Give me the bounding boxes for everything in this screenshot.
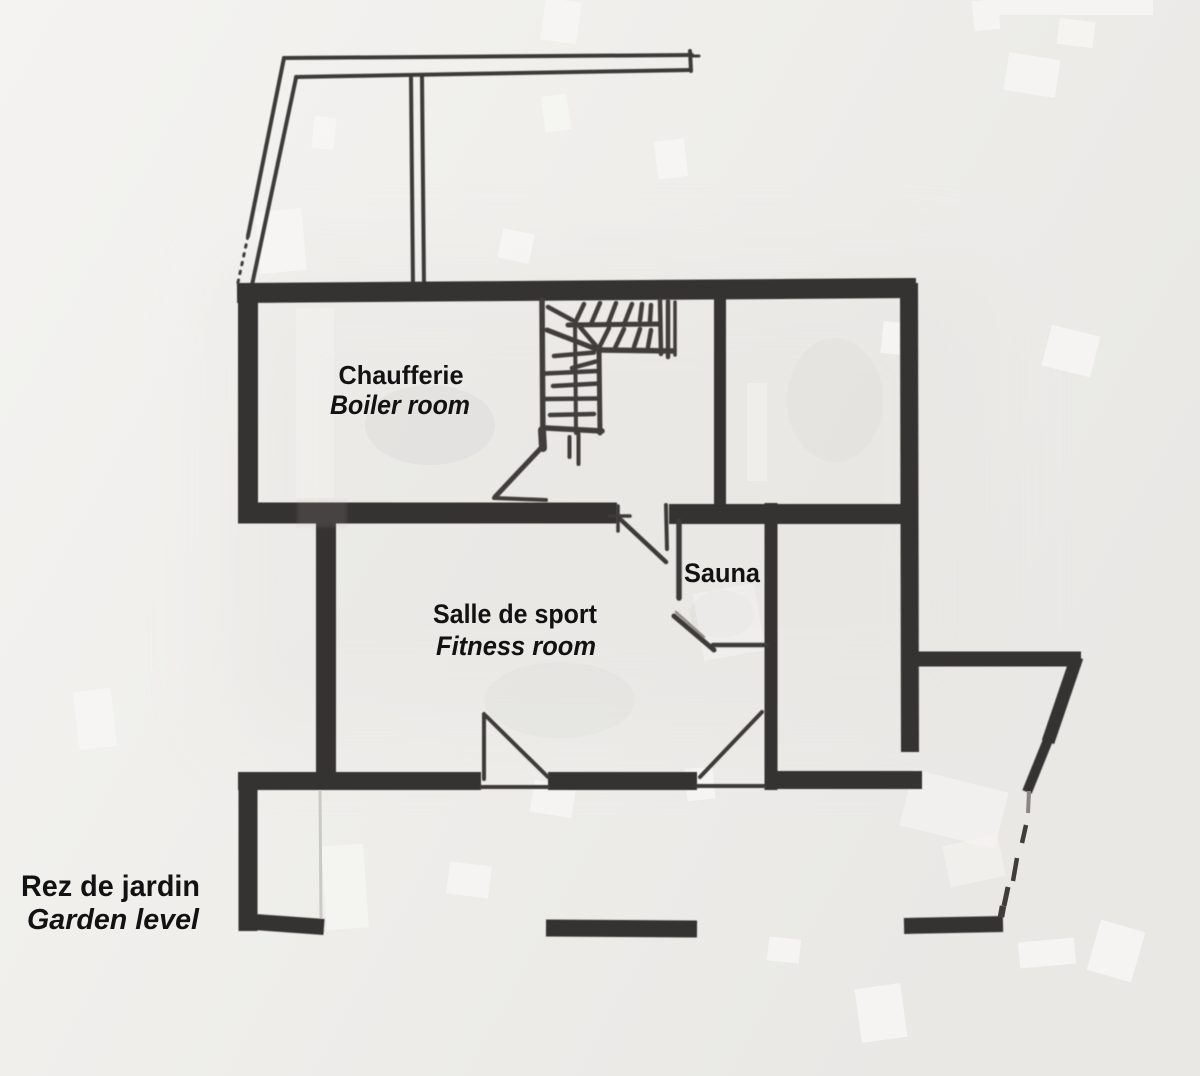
svg-text:Chaufferie: Chaufferie (339, 360, 464, 390)
svg-text:Fitness room: Fitness room (436, 631, 596, 661)
svg-text:Rez de jardin: Rez de jardin (21, 870, 200, 903)
svg-text:Sauna: Sauna (684, 558, 761, 588)
svg-text:Garden level: Garden level (27, 904, 200, 936)
svg-text:Boiler room: Boiler room (330, 390, 470, 420)
svg-text:Salle de sport: Salle de sport (433, 599, 597, 629)
